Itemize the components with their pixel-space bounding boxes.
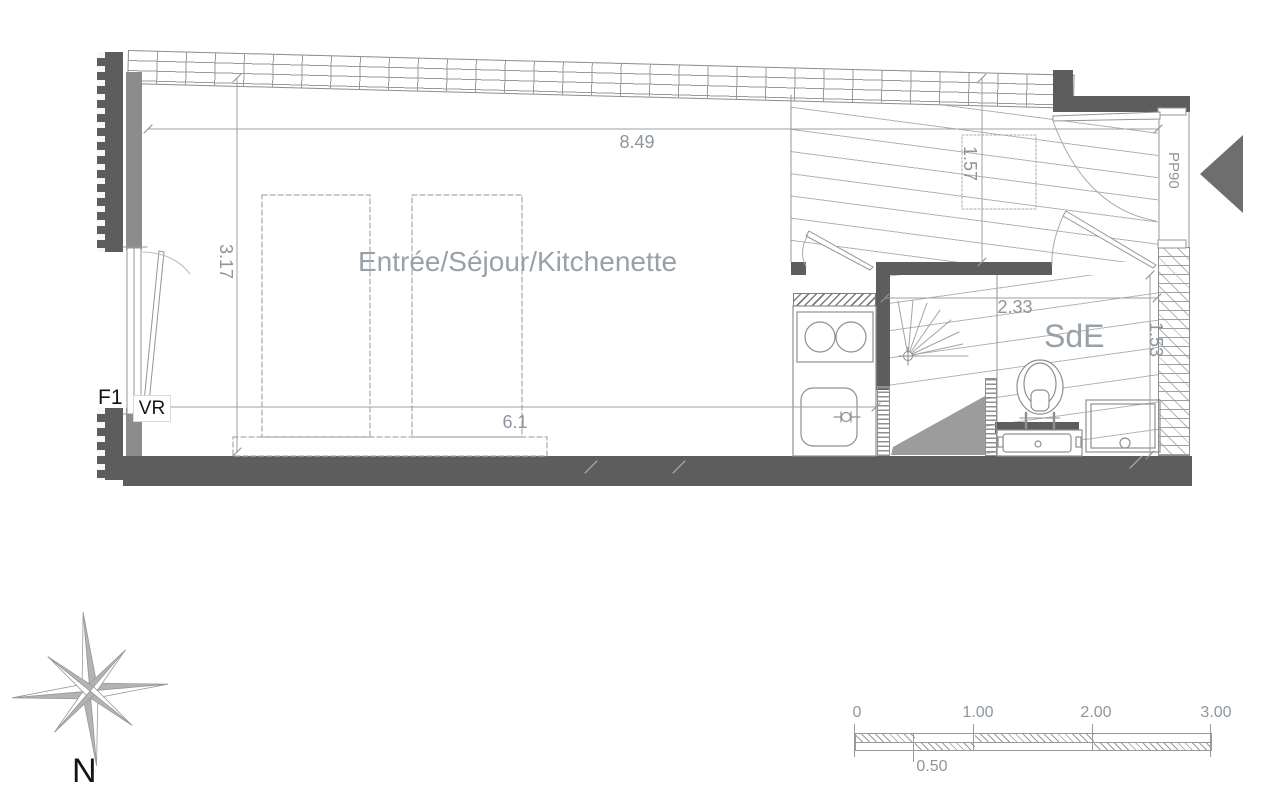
toilet [1017, 360, 1063, 428]
kitchenette [793, 306, 876, 456]
scale-bar-tick-mark [913, 733, 914, 762]
scale-bar-graphic [855, 733, 1212, 751]
compass-rose-icon [2, 596, 178, 776]
dim-left-height: 3.17 [215, 244, 236, 279]
scale-tick-3: 3.00 [1186, 704, 1246, 722]
dim-bathroom-height: 1.53 [1145, 322, 1166, 357]
shower-tray [1086, 400, 1160, 452]
dim-top-width: 8.49 [607, 132, 667, 153]
scale-tick-2: 2.00 [1066, 704, 1126, 722]
scale-bar-tick-mark [854, 724, 855, 757]
scale-bar-tick-mark [973, 724, 974, 751]
window-f1 [127, 248, 190, 414]
unit-type-label: F1 [98, 386, 123, 410]
dim-entry-depth: 1.57 [959, 146, 980, 181]
entry-arrow-icon [1200, 135, 1243, 213]
room-label-living: Entrée/Séjour/Kitchenette [358, 246, 677, 278]
floor-plan-canvas: N Entrée/Séjour/Kitchenette SdE 8.49 3.1… [0, 0, 1284, 800]
water-heater-symbol [898, 300, 968, 365]
entry-door-label: PP90 [1165, 152, 1182, 189]
plan-linework [0, 0, 1284, 800]
compass-north-label: N [72, 752, 97, 791]
roller-shutter-label: VR [139, 398, 165, 419]
bottom-wall-ticks [585, 456, 1142, 473]
vanity-sink [997, 430, 1082, 456]
shower-corner [890, 388, 985, 456]
kitchen-door [802, 231, 873, 270]
scale-bar-tick-mark [1092, 724, 1093, 751]
scale-tick-0: 0 [827, 704, 887, 722]
roller-shutter-tag: VR [133, 395, 171, 422]
bathroom-door [1052, 211, 1156, 268]
dim-living-width: 6.1 [485, 412, 545, 433]
shower-drain [1120, 438, 1130, 448]
scale-bar-tick-mark [1210, 724, 1211, 757]
dim-bathroom-width: 2.33 [985, 297, 1045, 318]
scale-tick-1: 1.00 [948, 704, 1008, 722]
room-label-bathroom: SdE [1044, 318, 1104, 355]
scale-half-tick: 0.50 [902, 758, 962, 776]
